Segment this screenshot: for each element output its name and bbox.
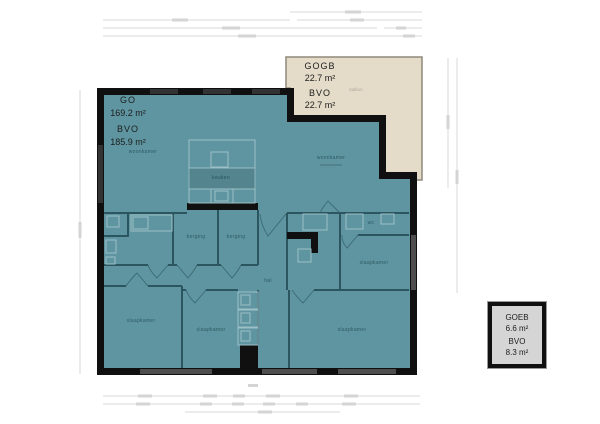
room-label-bedroom-bottom-center: slaapkamer [197, 327, 226, 333]
goeb-label: GOEB [505, 312, 528, 323]
storage-bvo-label: BVO [509, 336, 526, 347]
living-right-sublabel [320, 164, 342, 166]
bvo-value: 185.9 m² [110, 136, 146, 149]
room-label-living-left: woonkamer [129, 149, 158, 155]
room-label-storage2: berging [227, 234, 246, 240]
bvo-label: BVO [110, 123, 146, 136]
go-value: 169.2 m² [110, 107, 146, 120]
floorplan-page: GO 169.2 m² BVO 185.9 m² GOGB 22.7 m² BV… [0, 0, 600, 424]
shaft-wall [240, 345, 258, 369]
balcony-bvo-value: 22.7 m² [304, 99, 335, 111]
room-label-toilet: wc [368, 220, 375, 226]
storage-bvo-value: 8.3 m² [506, 347, 529, 358]
main-unit-label: GO 169.2 m² BVO 185.9 m² [110, 94, 146, 149]
room-label-balcony: balkon [349, 87, 362, 92]
bathroom-wall-v [311, 232, 318, 253]
gogb-value: 22.7 m² [304, 72, 335, 84]
external-storage-box: GOEB 6.6 m² BVO 8.3 m² [488, 302, 546, 368]
room-label-storage1: berging [187, 234, 206, 240]
room-label-bedroom-bottom-left: slaapkamer [127, 318, 156, 324]
balcony-unit-label: GOGB 22.7 m² BVO 22.7 m² [304, 60, 335, 111]
room-label-living-right: woonkamer [317, 155, 346, 161]
balcony-bvo-label: BVO [304, 87, 335, 99]
room-label-bedroom-bottom-right: slaapkamer [338, 327, 367, 333]
room-label-hall: hal [264, 278, 272, 284]
gogb-label: GOGB [304, 60, 335, 72]
goeb-value: 6.6 m² [506, 323, 529, 334]
go-label: GO [110, 94, 146, 107]
room-label-bedroom-mid-right: slaapkamer [360, 260, 389, 266]
kitchen-wall [187, 203, 258, 210]
room-label-kitchen: keuken [212, 175, 230, 181]
